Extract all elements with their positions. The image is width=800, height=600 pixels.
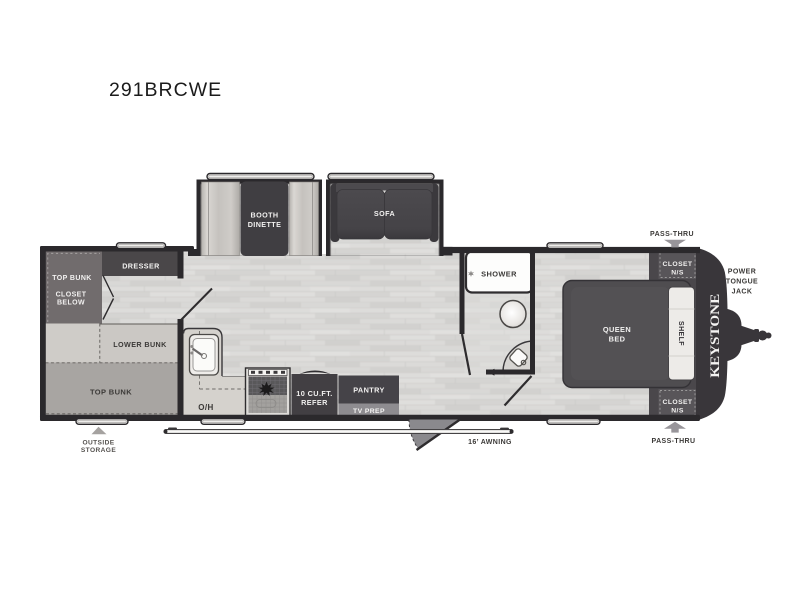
svg-text:LOWER BUNK: LOWER BUNK bbox=[113, 340, 167, 349]
svg-text:291BRCWE: 291BRCWE bbox=[109, 79, 222, 101]
svg-text:DINETTE: DINETTE bbox=[248, 220, 282, 229]
svg-text:BOOTH: BOOTH bbox=[251, 211, 279, 220]
svg-text:CLOSET: CLOSET bbox=[56, 292, 87, 299]
svg-text:REFER: REFER bbox=[301, 398, 328, 407]
svg-text:N/S: N/S bbox=[671, 270, 684, 277]
svg-text:SHOWER: SHOWER bbox=[481, 270, 517, 279]
svg-text:OUTSIDE: OUTSIDE bbox=[82, 440, 114, 447]
svg-text:DRESSER: DRESSER bbox=[122, 262, 160, 271]
svg-text:TOP BUNK: TOP BUNK bbox=[90, 388, 132, 397]
svg-text:16’ AWNING: 16’ AWNING bbox=[468, 439, 512, 446]
svg-text:KEYSTONE: KEYSTONE bbox=[707, 294, 722, 378]
svg-text:BELOW: BELOW bbox=[57, 300, 85, 307]
svg-text:PASS-THRU: PASS-THRU bbox=[652, 438, 696, 445]
svg-text:O/H: O/H bbox=[198, 403, 213, 412]
svg-text:SHELF: SHELF bbox=[677, 321, 684, 346]
svg-text:TOP BUNK: TOP BUNK bbox=[52, 275, 92, 282]
svg-text:10 CU.FT.: 10 CU.FT. bbox=[296, 389, 332, 398]
svg-text:N/S: N/S bbox=[671, 408, 684, 415]
svg-text:CLOSET: CLOSET bbox=[663, 399, 693, 406]
svg-text:PASS-THRU: PASS-THRU bbox=[650, 231, 694, 238]
svg-text:TONGUE: TONGUE bbox=[726, 279, 758, 286]
svg-text:STORAGE: STORAGE bbox=[81, 447, 116, 454]
svg-text:SOFA: SOFA bbox=[374, 209, 395, 218]
svg-text:PANTRY: PANTRY bbox=[353, 386, 385, 395]
svg-text:CLOSET: CLOSET bbox=[663, 261, 693, 268]
svg-text:POWER: POWER bbox=[728, 269, 756, 276]
svg-text:TV PREP: TV PREP bbox=[353, 408, 385, 415]
svg-text:BED: BED bbox=[609, 335, 626, 344]
svg-text:JACK: JACK bbox=[732, 289, 753, 296]
svg-text:QUEEN: QUEEN bbox=[603, 325, 631, 334]
